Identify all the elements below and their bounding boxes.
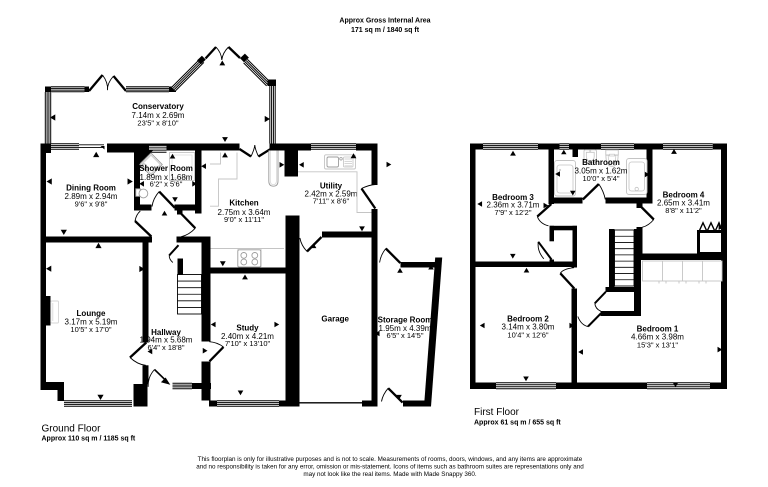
svg-text:may not look like the real ite: may not look like the real items. Made w… [303, 471, 477, 478]
svg-text:10'5" x 17'0": 10'5" x 17'0" [70, 325, 111, 334]
svg-text:This floorplan is only for ill: This floorplan is only for illustrative … [198, 456, 583, 463]
svg-text:15'3" x 13'1": 15'3" x 13'1" [637, 340, 678, 349]
svg-text:Garage: Garage [321, 315, 349, 324]
svg-text:9'0" x 11'11": 9'0" x 11'11" [224, 215, 264, 224]
svg-text:23'5" x 8'10": 23'5" x 8'10" [137, 119, 178, 128]
svg-text:and no responsibility is taken: and no responsibility is taken for any e… [196, 464, 584, 471]
svg-text:Kitchen: Kitchen [229, 199, 258, 208]
svg-text:Conservatory: Conservatory [132, 102, 184, 111]
svg-text:8'8" x 11'2": 8'8" x 11'2" [665, 206, 702, 215]
svg-text:171 sq m / 1840 sq ft: 171 sq m / 1840 sq ft [351, 27, 420, 34]
svg-text:6'4" x 18'8": 6'4" x 18'8" [148, 343, 185, 352]
svg-text:10'4" x 12'6": 10'4" x 12'6" [507, 330, 548, 339]
svg-text:Approx Gross Internal Area: Approx Gross Internal Area [339, 18, 430, 25]
svg-text:7'9" x 12'2": 7'9" x 12'2" [495, 208, 532, 217]
svg-text:Approx 61 sq m / 655 sq ft: Approx 61 sq m / 655 sq ft [474, 419, 561, 426]
svg-text:10'0" x 5'4": 10'0" x 5'4" [583, 174, 620, 183]
svg-text:9'6" x 9'8": 9'6" x 9'8" [75, 199, 108, 208]
svg-text:Ground Floor: Ground Floor [42, 423, 102, 434]
svg-text:6'2" x 5'6": 6'2" x 5'6" [150, 180, 183, 189]
svg-text:7'10" x 13'10": 7'10" x 13'10" [225, 339, 271, 348]
svg-text:Shower Room: Shower Room [139, 164, 193, 173]
svg-text:6'5" x 14'5": 6'5" x 14'5" [387, 331, 424, 340]
svg-text:Approx 110 sq m / 1185 sq ft: Approx 110 sq m / 1185 sq ft [42, 436, 136, 443]
svg-text:7'11" x 8'6": 7'11" x 8'6" [313, 196, 350, 205]
svg-text:First Floor: First Floor [474, 407, 520, 418]
